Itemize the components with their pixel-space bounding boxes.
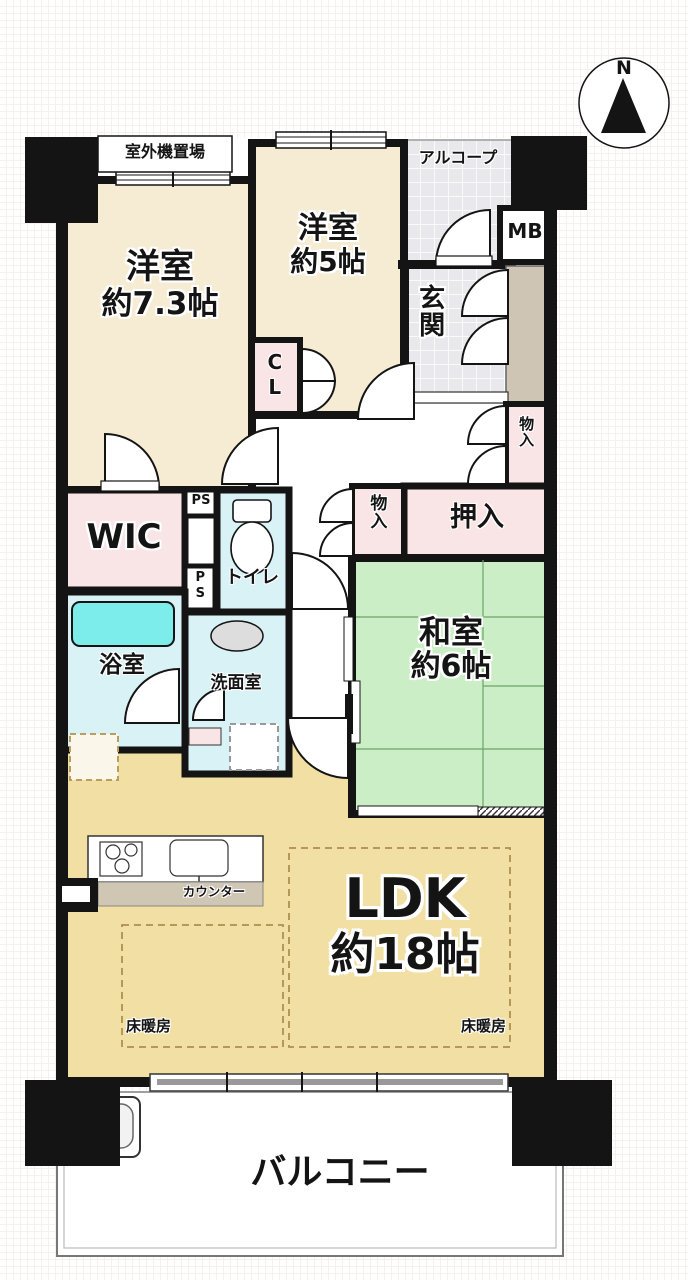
label-balcony: バルコニー	[195, 1152, 485, 1193]
label-western2: 洋室 約5帖	[256, 212, 400, 278]
label-ldk: LDK 約18帖	[300, 868, 510, 980]
toilet-icon	[231, 500, 273, 574]
washroom-sink	[211, 621, 263, 651]
label-closet: CL	[263, 350, 286, 400]
washer-space	[230, 724, 278, 770]
pillar-top-right	[511, 136, 587, 210]
label-toilet: トイレ	[214, 568, 290, 589]
label-counter: カウンター	[170, 885, 258, 899]
pillar-bottom-right	[512, 1080, 612, 1166]
label-oshiire: 押入	[408, 503, 546, 534]
kitchen-sink-icon	[170, 840, 228, 876]
label-japanese-room: 和室 約6帖	[376, 614, 526, 685]
pillar-bottom-left	[25, 1080, 120, 1166]
floor-plan: N 室外機置場 アルコープ MB 玄関 洋室 約7.3帖 洋室 約5帖 CL 物…	[0, 0, 688, 1280]
label-ps-lower: PS	[192, 570, 207, 602]
label-entrance: 玄関	[414, 284, 444, 338]
room-western-1	[62, 180, 252, 490]
label-western1: 洋室 約7.3帖	[75, 248, 245, 322]
label-alcove: アルコープ	[406, 149, 510, 167]
label-washroom: 洗面室	[186, 674, 286, 693]
label-compass-north: N	[611, 58, 637, 80]
label-floor-heating-right: 床暖房	[436, 1018, 506, 1035]
label-storage-upper: 物入	[517, 416, 534, 448]
label-storage-lower: 物入	[366, 494, 385, 530]
floor-plan-canvas	[0, 0, 688, 1280]
entrance-step	[404, 392, 508, 403]
pillar-top-left	[25, 137, 98, 223]
label-bath: 浴室	[70, 652, 174, 678]
bathtub	[72, 602, 174, 646]
fridge-space	[70, 734, 118, 780]
label-ps-upper: PS	[186, 494, 216, 509]
label-wic: WIC	[66, 518, 182, 557]
shoe-cabinet	[506, 266, 550, 402]
balcony-window	[150, 1072, 508, 1092]
window-western-2	[276, 130, 386, 150]
label-meter-box: MB	[501, 220, 549, 243]
label-floor-heating-left: 床暖房	[126, 1018, 196, 1035]
label-outdoor-unit: 室外機置場	[100, 143, 230, 161]
